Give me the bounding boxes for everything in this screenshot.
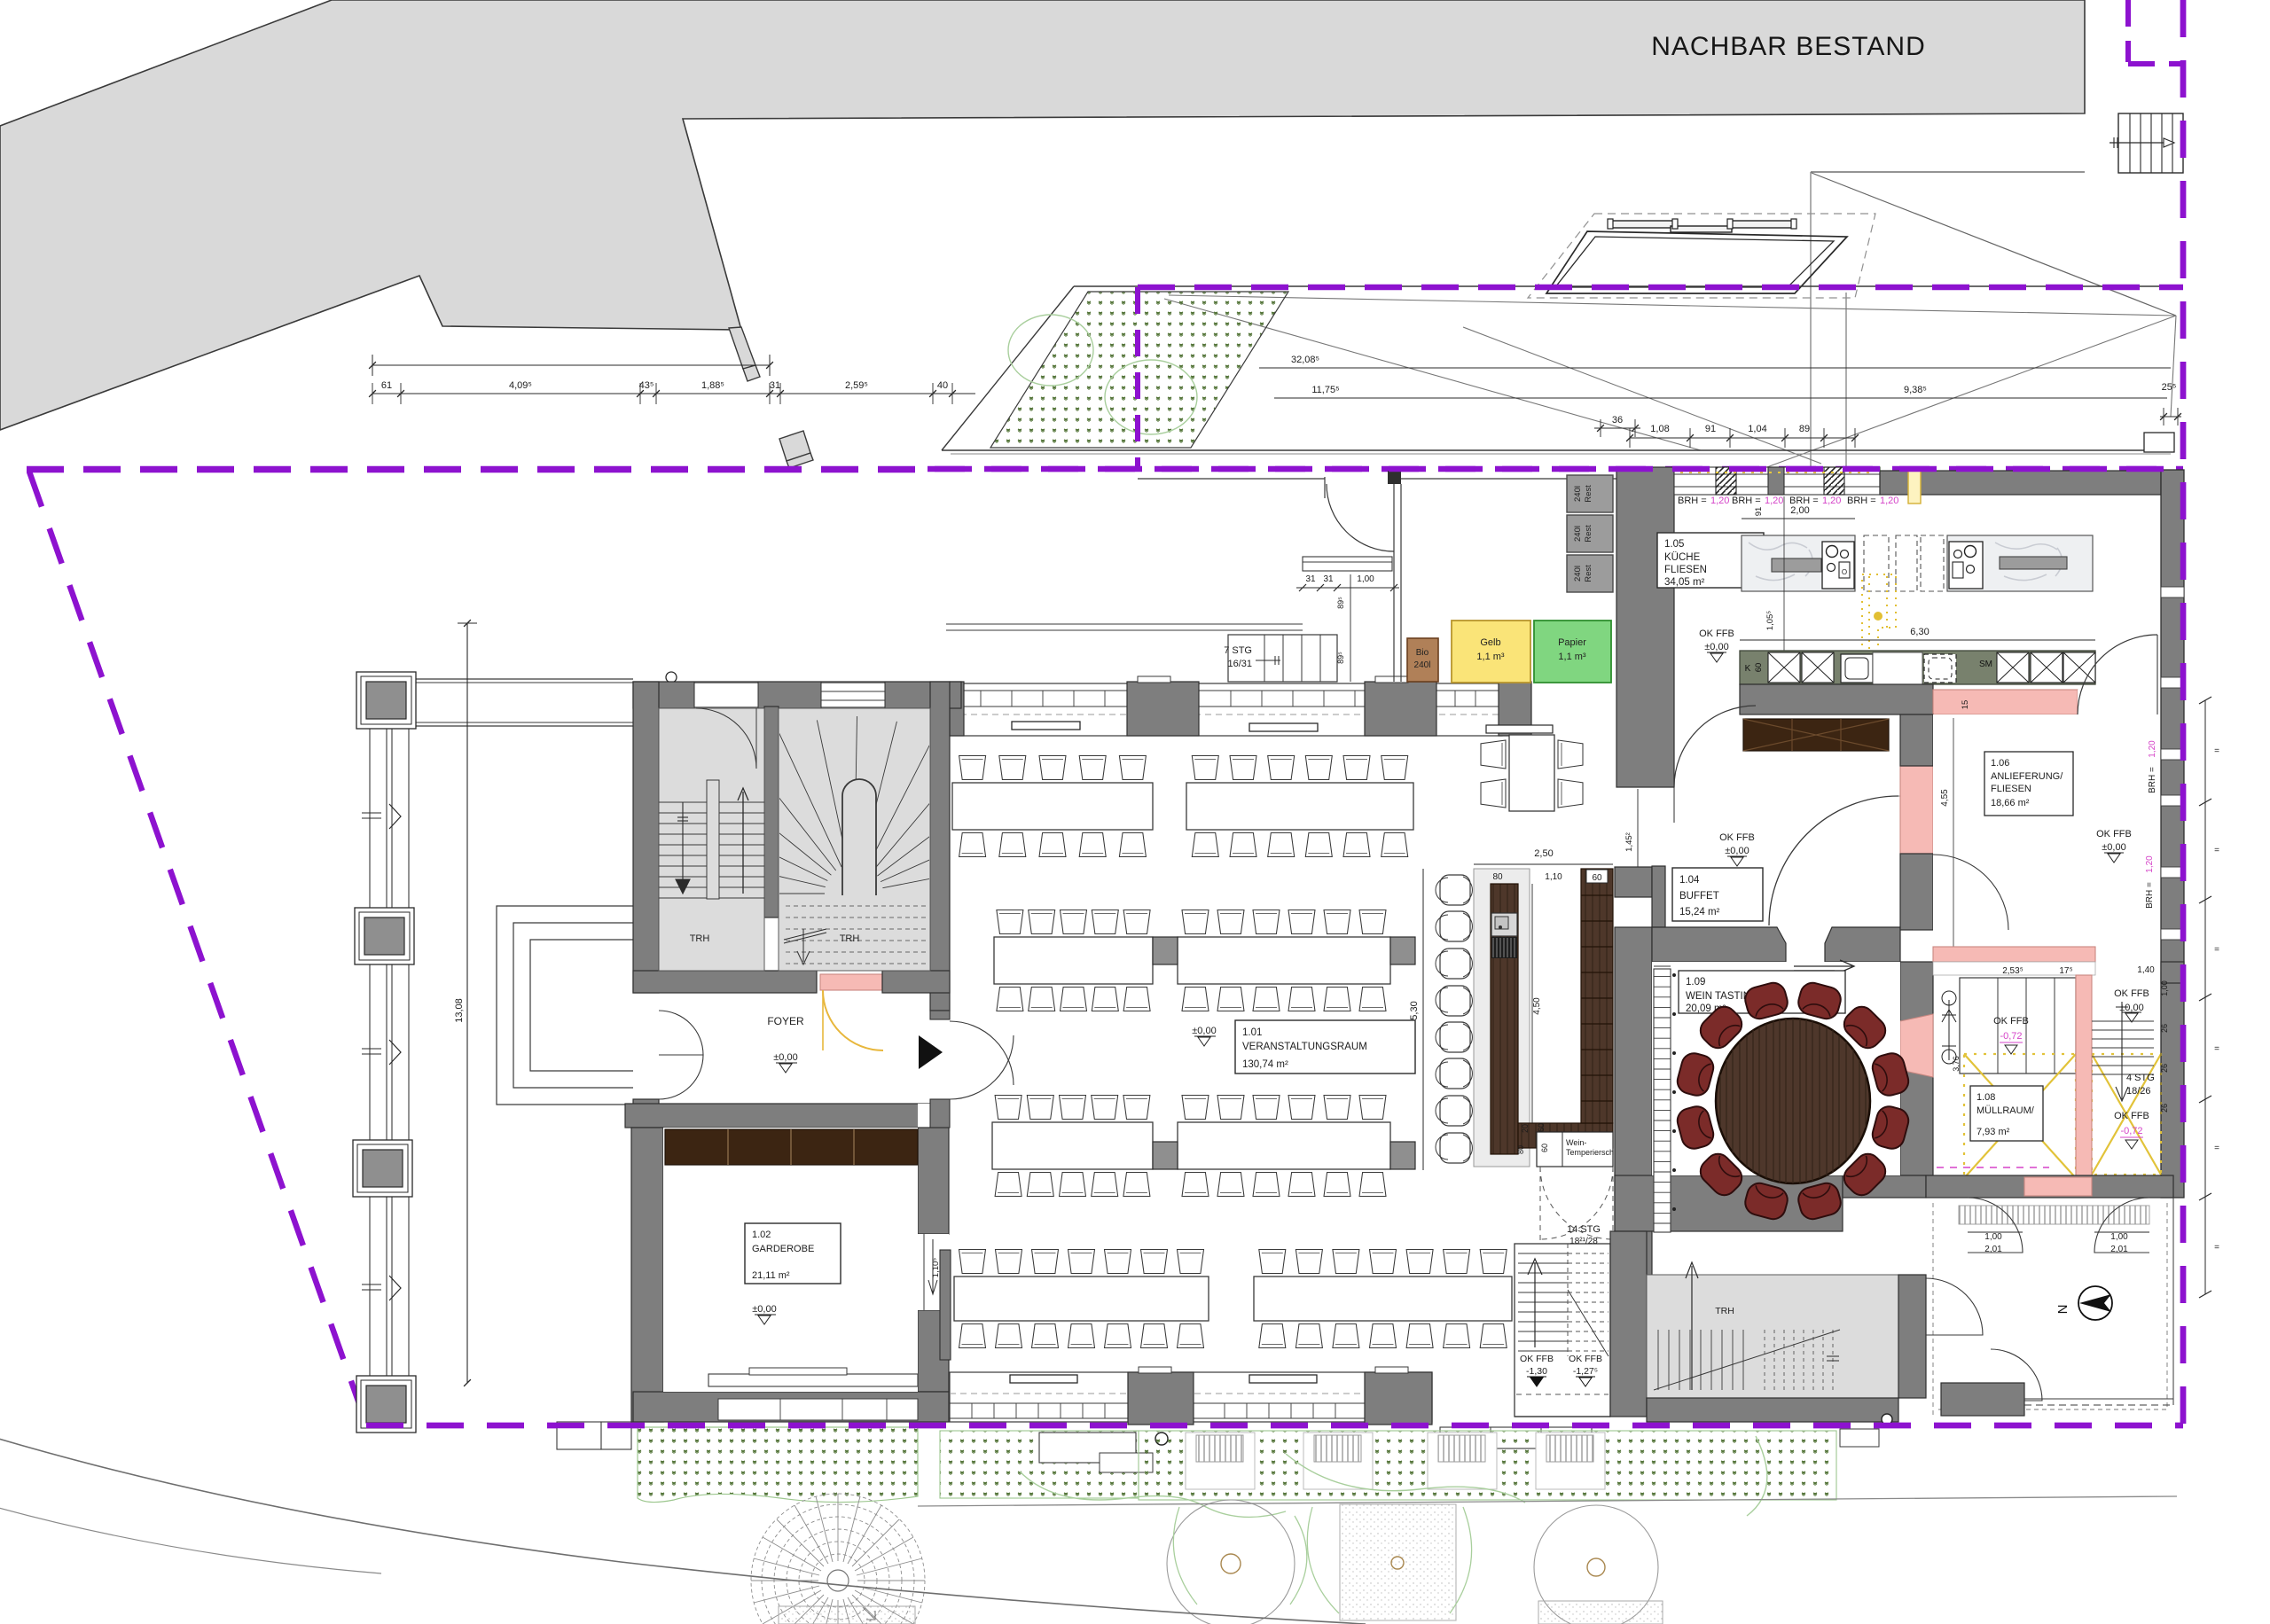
- svg-text:-1,30: -1,30: [1526, 1366, 1547, 1377]
- svg-text:1,10: 1,10: [1545, 872, 1562, 882]
- svg-text:1,40: 1,40: [2137, 965, 2155, 975]
- svg-text:4,50: 4,50: [1532, 997, 1542, 1015]
- svg-text:3,76: 3,76: [1952, 1056, 1961, 1072]
- svg-text:Rest: Rest: [1584, 525, 1593, 543]
- svg-text:4,55: 4,55: [1940, 789, 1950, 807]
- svg-text:FLIESEN: FLIESEN: [1991, 784, 2031, 794]
- svg-text:89⁵: 89⁵: [1336, 597, 1345, 609]
- svg-text:=: =: [2214, 846, 2219, 855]
- svg-text:OK FFB: OK FFB: [2114, 988, 2149, 999]
- svg-text:MÜLLRAUM/: MÜLLRAUM/: [1976, 1105, 2035, 1116]
- svg-text:Bio: Bio: [1416, 648, 1429, 658]
- svg-text:±0,00: ±0,00: [1725, 846, 1749, 856]
- svg-text:89⁵: 89⁵: [1336, 652, 1345, 664]
- svg-text:NACHBAR BESTAND: NACHBAR BESTAND: [1651, 32, 1926, 61]
- svg-text:80: 80: [1492, 872, 1503, 882]
- svg-text:Rest: Rest: [1584, 485, 1593, 503]
- svg-text:1.09: 1.09: [1686, 977, 1705, 988]
- svg-text:6,30: 6,30: [1910, 627, 1929, 637]
- svg-text:Gelb: Gelb: [1480, 637, 1500, 648]
- svg-text:±0,00: ±0,00: [1704, 642, 1728, 652]
- svg-text:OK FFB: OK FFB: [1569, 1354, 1602, 1364]
- svg-text:43⁵: 43⁵: [639, 380, 654, 391]
- svg-text:80: 80: [1516, 1145, 1525, 1154]
- svg-text:Rest: Rest: [1584, 565, 1593, 582]
- svg-text:1.08: 1.08: [1976, 1092, 1995, 1103]
- svg-text:OK FFB: OK FFB: [1699, 629, 1734, 639]
- svg-text:240l: 240l: [1573, 526, 1583, 542]
- svg-text:26: 26: [2160, 1104, 2169, 1113]
- svg-text:1,00: 1,00: [2110, 1232, 2128, 1242]
- svg-text:OK FFB: OK FFB: [1719, 832, 1755, 843]
- svg-text:N: N: [2055, 1305, 2070, 1315]
- svg-text:21,11 m²: 21,11 m²: [752, 1270, 790, 1281]
- svg-text:TRH: TRH: [690, 933, 710, 944]
- svg-text:36: 36: [1612, 415, 1623, 426]
- svg-text:240l: 240l: [1414, 660, 1431, 670]
- svg-text:18,66 m²: 18,66 m²: [1991, 798, 2030, 808]
- svg-text:60: 60: [1537, 1123, 1546, 1132]
- svg-text:17⁵: 17⁵: [2059, 966, 2072, 976]
- svg-text:-0,72: -0,72: [2120, 1126, 2142, 1136]
- svg-text:1.01: 1.01: [1242, 1027, 1262, 1038]
- svg-text:GARDEROBE: GARDEROBE: [752, 1244, 814, 1254]
- svg-text:1.04: 1.04: [1679, 875, 1700, 886]
- svg-text:60: 60: [1754, 663, 1764, 673]
- svg-text:240l: 240l: [1573, 566, 1583, 582]
- svg-text:=: =: [2214, 1144, 2219, 1153]
- svg-text:Wein-: Wein-: [1566, 1138, 1586, 1147]
- svg-text:-0,72: -0,72: [2000, 1031, 2022, 1042]
- svg-text:9,38⁵: 9,38⁵: [1904, 385, 1927, 395]
- svg-text:1,1 m³: 1,1 m³: [1476, 652, 1505, 662]
- svg-text:1,20: 1,20: [1822, 496, 1841, 506]
- svg-text:91: 91: [1754, 507, 1764, 517]
- svg-text:26: 26: [2160, 1024, 2169, 1033]
- svg-text:1.06: 1.06: [1991, 758, 2009, 769]
- svg-text:±0,00: ±0,00: [1192, 1026, 1216, 1036]
- svg-text:Papier: Papier: [1558, 637, 1586, 648]
- svg-text:BRH =: BRH =: [2148, 767, 2157, 793]
- svg-text:20: 20: [1521, 1124, 1530, 1133]
- svg-text:5,30: 5,30: [1409, 1001, 1420, 1019]
- svg-text:2,50: 2,50: [1534, 848, 1553, 859]
- svg-text:61: 61: [381, 380, 392, 391]
- svg-text:BRH =: BRH =: [2145, 882, 2155, 909]
- svg-text:25⁵: 25⁵: [2162, 382, 2177, 393]
- svg-text:1,10⁵: 1,10⁵: [931, 1258, 941, 1277]
- svg-text:7,93 m²: 7,93 m²: [1976, 1127, 2010, 1137]
- svg-text:2,53⁵: 2,53⁵: [2002, 966, 2023, 976]
- svg-text:18/26: 18/26: [2126, 1086, 2151, 1097]
- svg-text:-1,27⁵: -1,27⁵: [1573, 1366, 1598, 1377]
- svg-text:13,08: 13,08: [454, 998, 465, 1023]
- svg-text:BUFFET: BUFFET: [1679, 891, 1719, 902]
- svg-text:OK FFB: OK FFB: [2114, 1111, 2149, 1121]
- svg-text:91: 91: [1705, 424, 1716, 434]
- svg-text:1.02: 1.02: [752, 1230, 771, 1240]
- svg-text:K: K: [1745, 664, 1751, 674]
- svg-text:11,75⁵: 11,75⁵: [1311, 385, 1339, 395]
- svg-text:60: 60: [1540, 1144, 1549, 1152]
- svg-text:SM: SM: [1979, 660, 1992, 669]
- svg-text:18²¹/28: 18²¹/28: [1569, 1237, 1598, 1246]
- svg-text:±0,00: ±0,00: [773, 1052, 797, 1063]
- svg-text:31: 31: [1323, 574, 1334, 584]
- svg-text:BRH =: BRH =: [1678, 496, 1707, 506]
- svg-text:1,20: 1,20: [1765, 496, 1783, 506]
- svg-text:1,00: 1,00: [2160, 980, 2169, 996]
- svg-text:240l: 240l: [1573, 486, 1583, 502]
- svg-text:ANLIEFERUNG/: ANLIEFERUNG/: [1991, 771, 2063, 782]
- svg-text:15,24 m²: 15,24 m²: [1679, 907, 1720, 917]
- svg-text:=: =: [2214, 1243, 2219, 1253]
- svg-text:1,20: 1,20: [2148, 740, 2157, 758]
- svg-text:OK FFB: OK FFB: [1993, 1016, 2029, 1027]
- svg-text:1,20: 1,20: [2145, 855, 2155, 873]
- svg-text:FOYER: FOYER: [767, 1015, 804, 1027]
- svg-text:31: 31: [770, 380, 780, 391]
- svg-text:26: 26: [2160, 1064, 2169, 1073]
- svg-text:32,08⁵: 32,08⁵: [1291, 355, 1319, 365]
- svg-text:±0,00: ±0,00: [752, 1304, 776, 1315]
- svg-text:7 STG: 7 STG: [1224, 645, 1252, 656]
- svg-text:130,74 m²: 130,74 m²: [1242, 1059, 1288, 1070]
- svg-text:2,01: 2,01: [2110, 1245, 2128, 1254]
- svg-text:OK FFB: OK FFB: [2096, 829, 2132, 839]
- svg-text:OK FFB: OK FFB: [1520, 1354, 1554, 1364]
- svg-text:1,00: 1,00: [1984, 1232, 2002, 1242]
- svg-text:1,08: 1,08: [1650, 424, 1669, 434]
- svg-text:4 STG: 4 STG: [2126, 1073, 2155, 1083]
- svg-text:O: O: [1842, 568, 1847, 576]
- svg-text:BRH =: BRH =: [1847, 496, 1876, 506]
- svg-text:FLIESEN: FLIESEN: [1664, 565, 1707, 575]
- svg-text:1,04: 1,04: [1748, 424, 1766, 434]
- svg-text:±0,00: ±0,00: [2102, 842, 2125, 853]
- svg-text:4,09⁵: 4,09⁵: [509, 380, 532, 391]
- svg-text:40: 40: [937, 380, 948, 391]
- svg-text:1,88⁵: 1,88⁵: [701, 380, 724, 391]
- svg-text:2,00: 2,00: [1790, 505, 1809, 516]
- svg-text:1,20: 1,20: [1880, 496, 1898, 506]
- svg-text:2,01: 2,01: [1984, 1245, 2002, 1254]
- svg-text:±0,00: ±0,00: [2119, 1003, 2143, 1013]
- svg-text:1,20: 1,20: [1710, 496, 1729, 506]
- svg-text:TRH: TRH: [1715, 1306, 1734, 1316]
- svg-text:1,05⁵: 1,05⁵: [1765, 611, 1775, 630]
- svg-text:1,00: 1,00: [1357, 574, 1374, 584]
- svg-text:=: =: [2214, 945, 2219, 955]
- svg-text:15: 15: [1961, 700, 1970, 710]
- svg-text:=: =: [2214, 1044, 2219, 1054]
- svg-text:KÜCHE: KÜCHE: [1664, 552, 1701, 563]
- svg-text:=: =: [2214, 746, 2219, 756]
- svg-text:TRH: TRH: [840, 933, 860, 944]
- svg-text:34,05 m²: 34,05 m²: [1664, 577, 1705, 588]
- svg-text:1,1 m³: 1,1 m³: [1558, 652, 1586, 662]
- svg-text:1,45²: 1,45²: [1624, 832, 1634, 852]
- svg-text:14 STG: 14 STG: [1567, 1224, 1601, 1235]
- svg-text:60: 60: [1592, 873, 1602, 883]
- svg-text:2,59⁵: 2,59⁵: [845, 380, 868, 391]
- svg-text:1.05: 1.05: [1664, 539, 1684, 550]
- svg-text:VERANSTALTUNGSRAUM: VERANSTALTUNGSRAUM: [1242, 1042, 1367, 1052]
- svg-text:16/31: 16/31: [1227, 659, 1252, 669]
- svg-text:31: 31: [1305, 574, 1316, 584]
- svg-text:BRH =: BRH =: [1732, 496, 1761, 506]
- svg-text:89: 89: [1799, 424, 1810, 434]
